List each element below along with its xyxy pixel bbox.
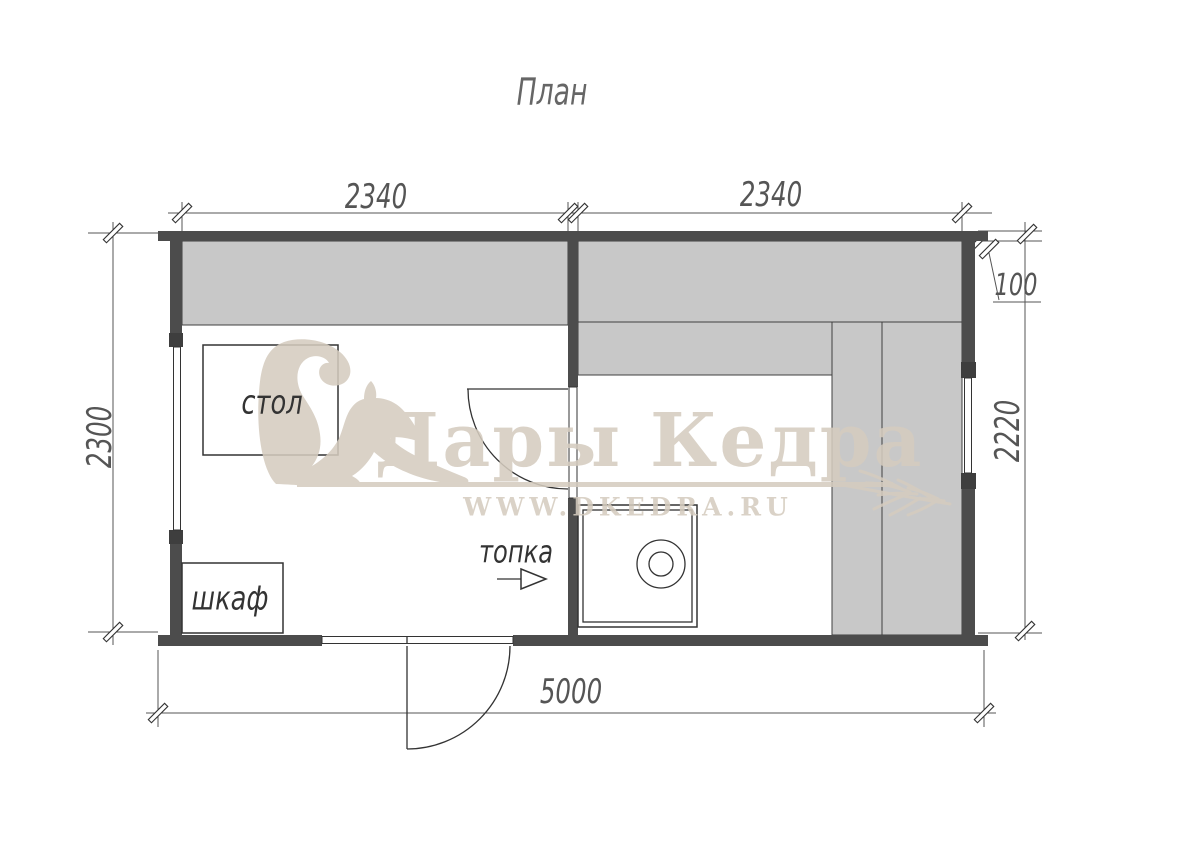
dimension-overall-width: 5000 — [540, 675, 602, 709]
watermark-url: WWW.DKEDRA.RU — [463, 495, 793, 520]
dimension-wall-thickness: 100 — [995, 271, 1038, 301]
room-label-firebox: топка — [479, 538, 553, 569]
room-label-cabinet: шкаф — [192, 582, 269, 615]
dimension-sauna-depth: 2220 — [991, 400, 1025, 462]
dimension-room2-width: 2340 — [740, 178, 802, 212]
watermark-brand: Дары Кедра — [375, 404, 924, 478]
page-title: План — [517, 74, 588, 111]
dimension-overall-depth: 2300 — [83, 406, 117, 468]
floor-plan-page: Дары Кедра WWW.DKEDRA.RU План 2340 2340 … — [0, 0, 1200, 848]
room-label-table: стол — [241, 386, 302, 419]
dimension-room1-width: 2340 — [345, 180, 407, 214]
